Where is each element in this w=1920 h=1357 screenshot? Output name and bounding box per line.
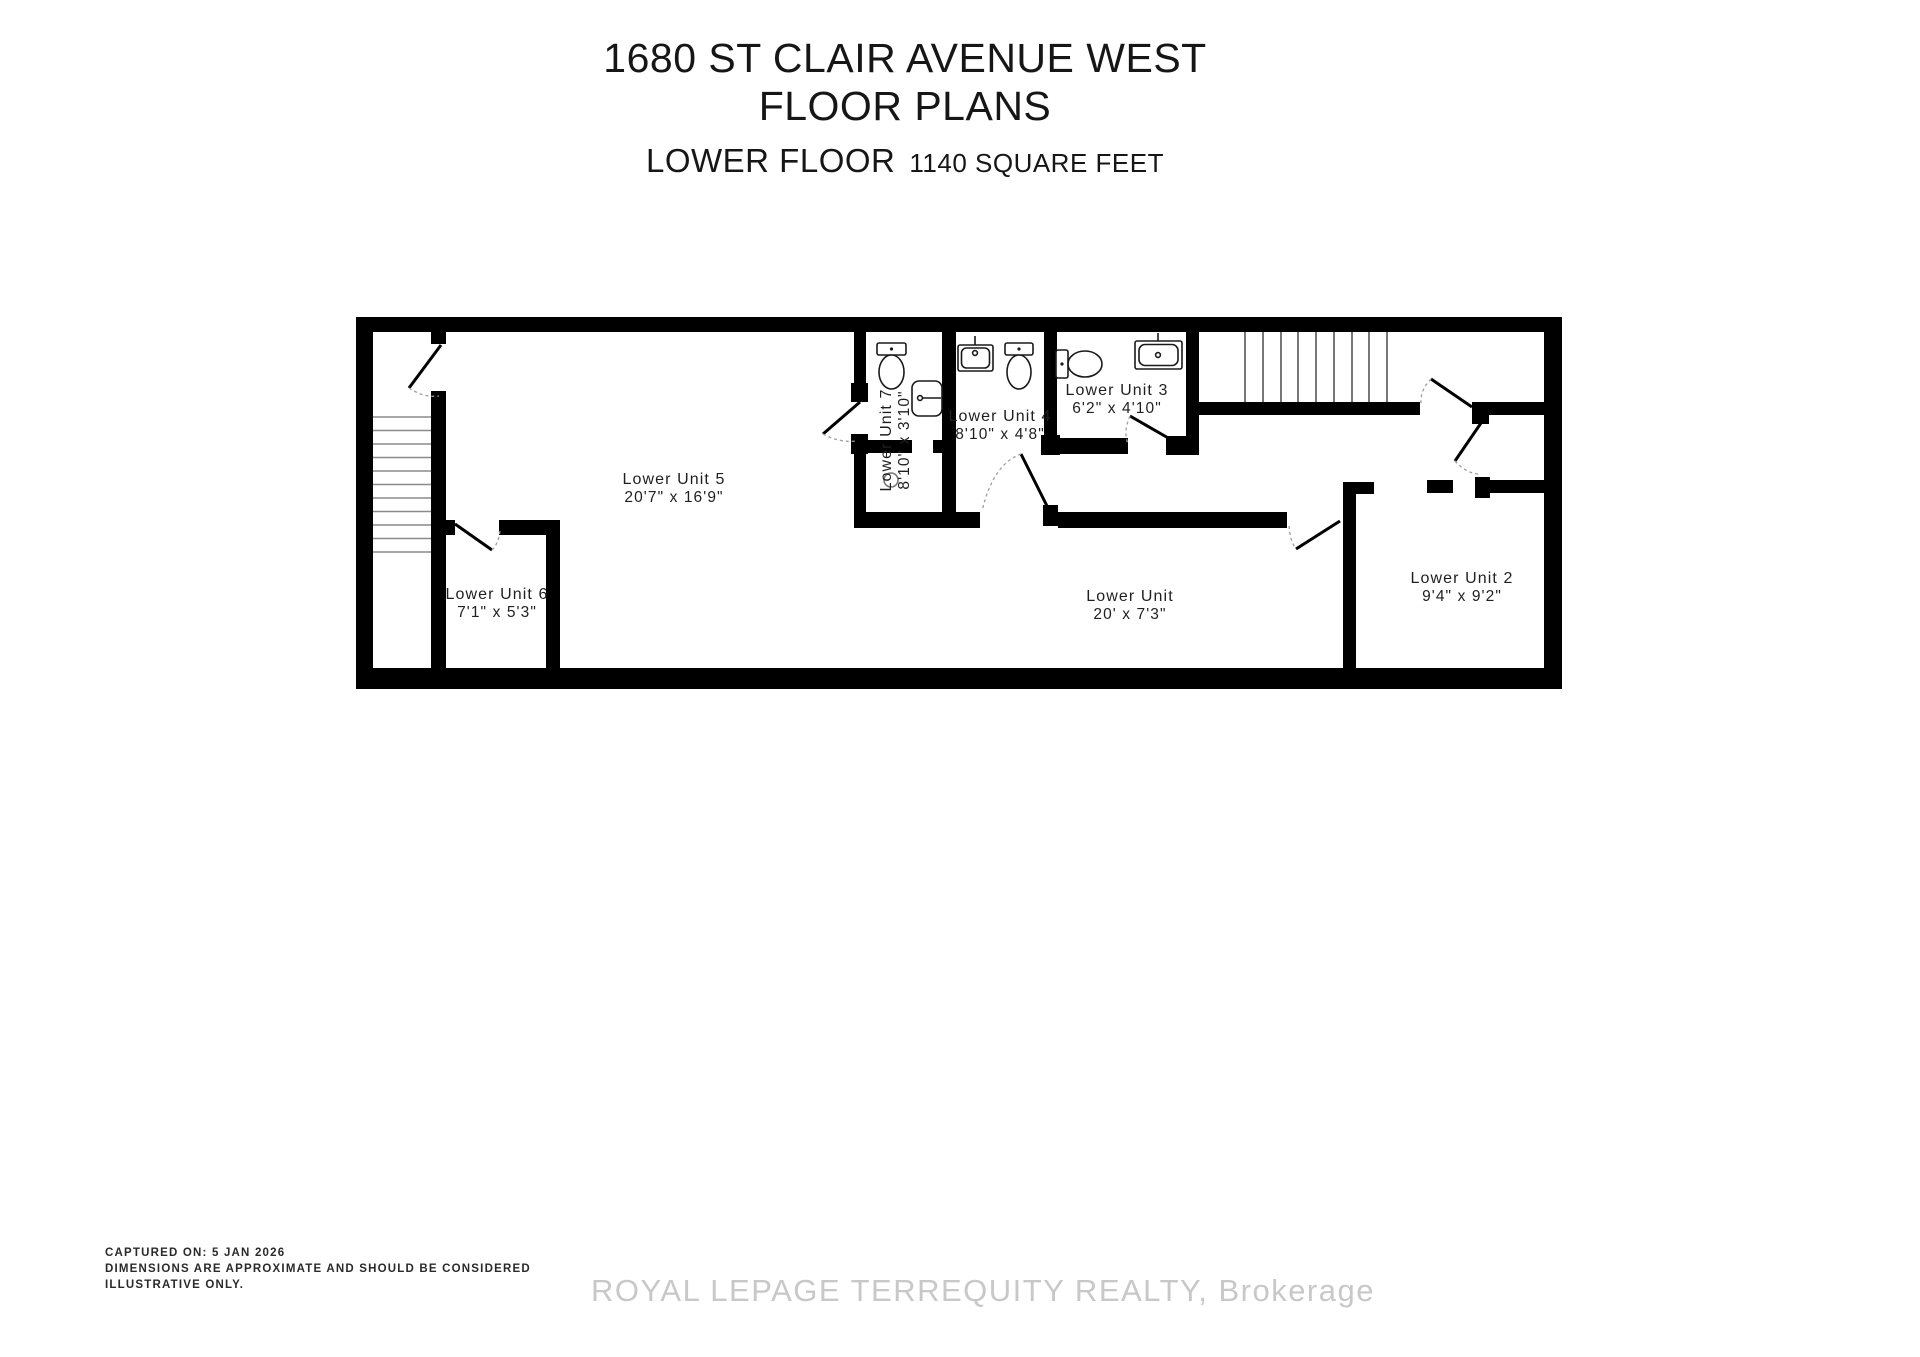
disclaimer-note: CAPTURED ON: 5 JAN 2026 DIMENSIONS ARE A… xyxy=(105,1245,531,1293)
page-title-line1: 1680 ST CLAIR AVENUE WEST xyxy=(603,34,1206,82)
stairs-left-icon xyxy=(373,417,431,552)
door-swing-icon-unit3 xyxy=(1126,416,1170,444)
room-label-unit6: Lower Unit 6 7'1" x 5'3" xyxy=(445,586,548,622)
title-block: 1680 ST CLAIR AVENUE WEST FLOOR PLANS LO… xyxy=(603,34,1206,180)
room-name: Lower Unit 4 xyxy=(948,408,1051,426)
stairs-top-right-icon xyxy=(1245,332,1387,402)
page-title-line2: FLOOR PLANS xyxy=(603,82,1206,130)
room-name: Lower Unit xyxy=(1086,588,1173,606)
room-label-unit7: Lower Unit 7 8'10" x 3'10" xyxy=(878,388,914,491)
disclaimer-line1: DIMENSIONS ARE APPROXIMATE AND SHOULD BE… xyxy=(105,1261,531,1277)
door-swing-icon-unit6 xyxy=(455,524,500,550)
sink-icon-unit7 xyxy=(912,381,942,416)
toilet-icon-unit4 xyxy=(1005,343,1033,389)
room-label-unit2: Lower Unit 2 9'4" x 9'2" xyxy=(1410,570,1513,606)
room-label-unit3: Lower Unit 3 6'2" x 4'10" xyxy=(1065,382,1168,418)
floor-name: LOWER FLOOR xyxy=(646,142,895,179)
room-dims: 8'10" x 3'10" xyxy=(896,388,914,491)
room-name: Lower Unit 2 xyxy=(1410,570,1513,588)
toilet-icon-unit7 xyxy=(877,343,906,389)
room-label-unit5: Lower Unit 5 20'7" x 16'9" xyxy=(622,471,725,507)
room-label-unit4: Lower Unit 4 8'10" x 4'8" xyxy=(948,408,1051,444)
room-name: Lower Unit 5 xyxy=(622,471,725,489)
outer-walls xyxy=(356,317,1562,689)
floor-area: 1140 SQUARE FEET xyxy=(909,148,1164,178)
room-name: Lower Unit 6 xyxy=(445,586,548,604)
door-swing-icon-unit2-closet xyxy=(1455,423,1481,474)
room-name: Lower Unit 3 xyxy=(1065,382,1168,400)
door-swing-icon-stairs-left xyxy=(409,345,441,396)
sink-icon-unit3 xyxy=(1135,333,1182,369)
room-name: Lower Unit 7 xyxy=(878,388,896,491)
room-dims: 7'1" x 5'3" xyxy=(445,604,548,622)
room-label-corridor: Lower Unit 20' x 7'3" xyxy=(1086,588,1173,624)
room-dims: 9'4" x 9'2" xyxy=(1410,588,1513,606)
interior-walls xyxy=(431,332,1544,668)
room-dims: 20' x 7'3" xyxy=(1086,606,1173,624)
brokerage-watermark: ROYAL LEPAGE TERREQUITY REALTY, Brokerag… xyxy=(591,1273,1375,1309)
room-dims: 8'10" x 4'8" xyxy=(948,426,1051,444)
room-dims: 20'7" x 16'9" xyxy=(622,489,725,507)
sink-icon-unit4 xyxy=(958,336,993,371)
disclaimer-line2: ILLUSTRATIVE ONLY. xyxy=(105,1277,531,1293)
room-dims: 6'2" x 4'10" xyxy=(1065,400,1168,418)
floor-plan-canvas xyxy=(340,300,1580,710)
door-swing-icon-corridor xyxy=(1289,521,1340,549)
door-swing-icon-unit4 xyxy=(982,454,1047,511)
door-swing-icon-stairs-top xyxy=(1421,379,1472,407)
toilet-icon-unit3 xyxy=(1056,350,1102,378)
page: { "title": { "line1": "1680 ST CLAIR AVE… xyxy=(0,0,1920,1357)
subtitle: LOWER FLOOR1140 SQUARE FEET xyxy=(603,142,1206,180)
captured-on-line: CAPTURED ON: 5 JAN 2026 xyxy=(105,1245,531,1261)
